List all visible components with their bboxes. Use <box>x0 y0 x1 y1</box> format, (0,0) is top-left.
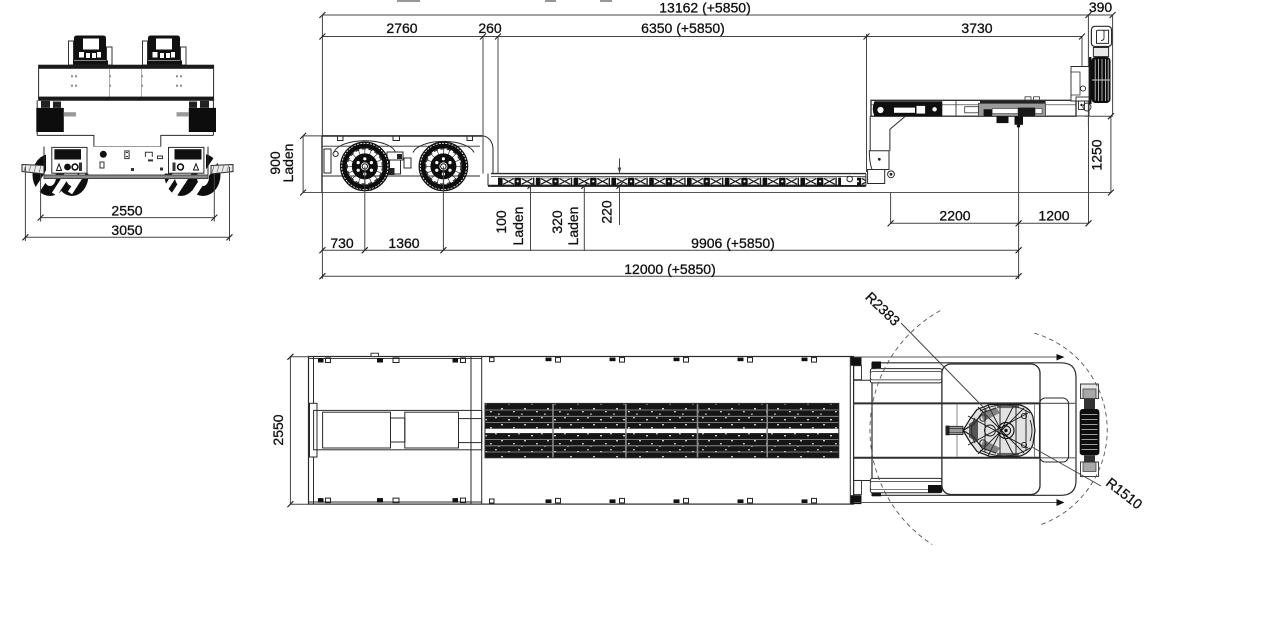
svg-text:100: 100 <box>493 210 509 234</box>
svg-text:260: 260 <box>478 20 502 36</box>
svg-text:Laden: Laden <box>565 207 581 246</box>
svg-text:9906 (+5850): 9906 (+5850) <box>691 235 775 251</box>
svg-text:3730: 3730 <box>961 20 992 36</box>
svg-text:1250: 1250 <box>1089 139 1105 170</box>
svg-text:2550: 2550 <box>111 202 142 218</box>
svg-text:730: 730 <box>330 235 354 251</box>
svg-text:Laden: Laden <box>510 207 526 246</box>
svg-text:220: 220 <box>599 200 615 224</box>
svg-text:13162 (+5850): 13162 (+5850) <box>659 0 750 16</box>
svg-text:320: 320 <box>549 210 565 234</box>
svg-text:3050: 3050 <box>111 222 142 238</box>
svg-text:12000 (+5850): 12000 (+5850) <box>624 261 715 277</box>
svg-text:6350 (+5850): 6350 (+5850) <box>641 20 725 36</box>
svg-text:2550: 2550 <box>270 414 286 445</box>
svg-text:1360: 1360 <box>388 235 419 251</box>
svg-text:2200: 2200 <box>939 208 970 224</box>
svg-text:2760: 2760 <box>386 20 417 36</box>
svg-text:Laden: Laden <box>280 144 296 183</box>
svg-text:1200: 1200 <box>1038 208 1069 224</box>
svg-text:390: 390 <box>1089 0 1113 15</box>
